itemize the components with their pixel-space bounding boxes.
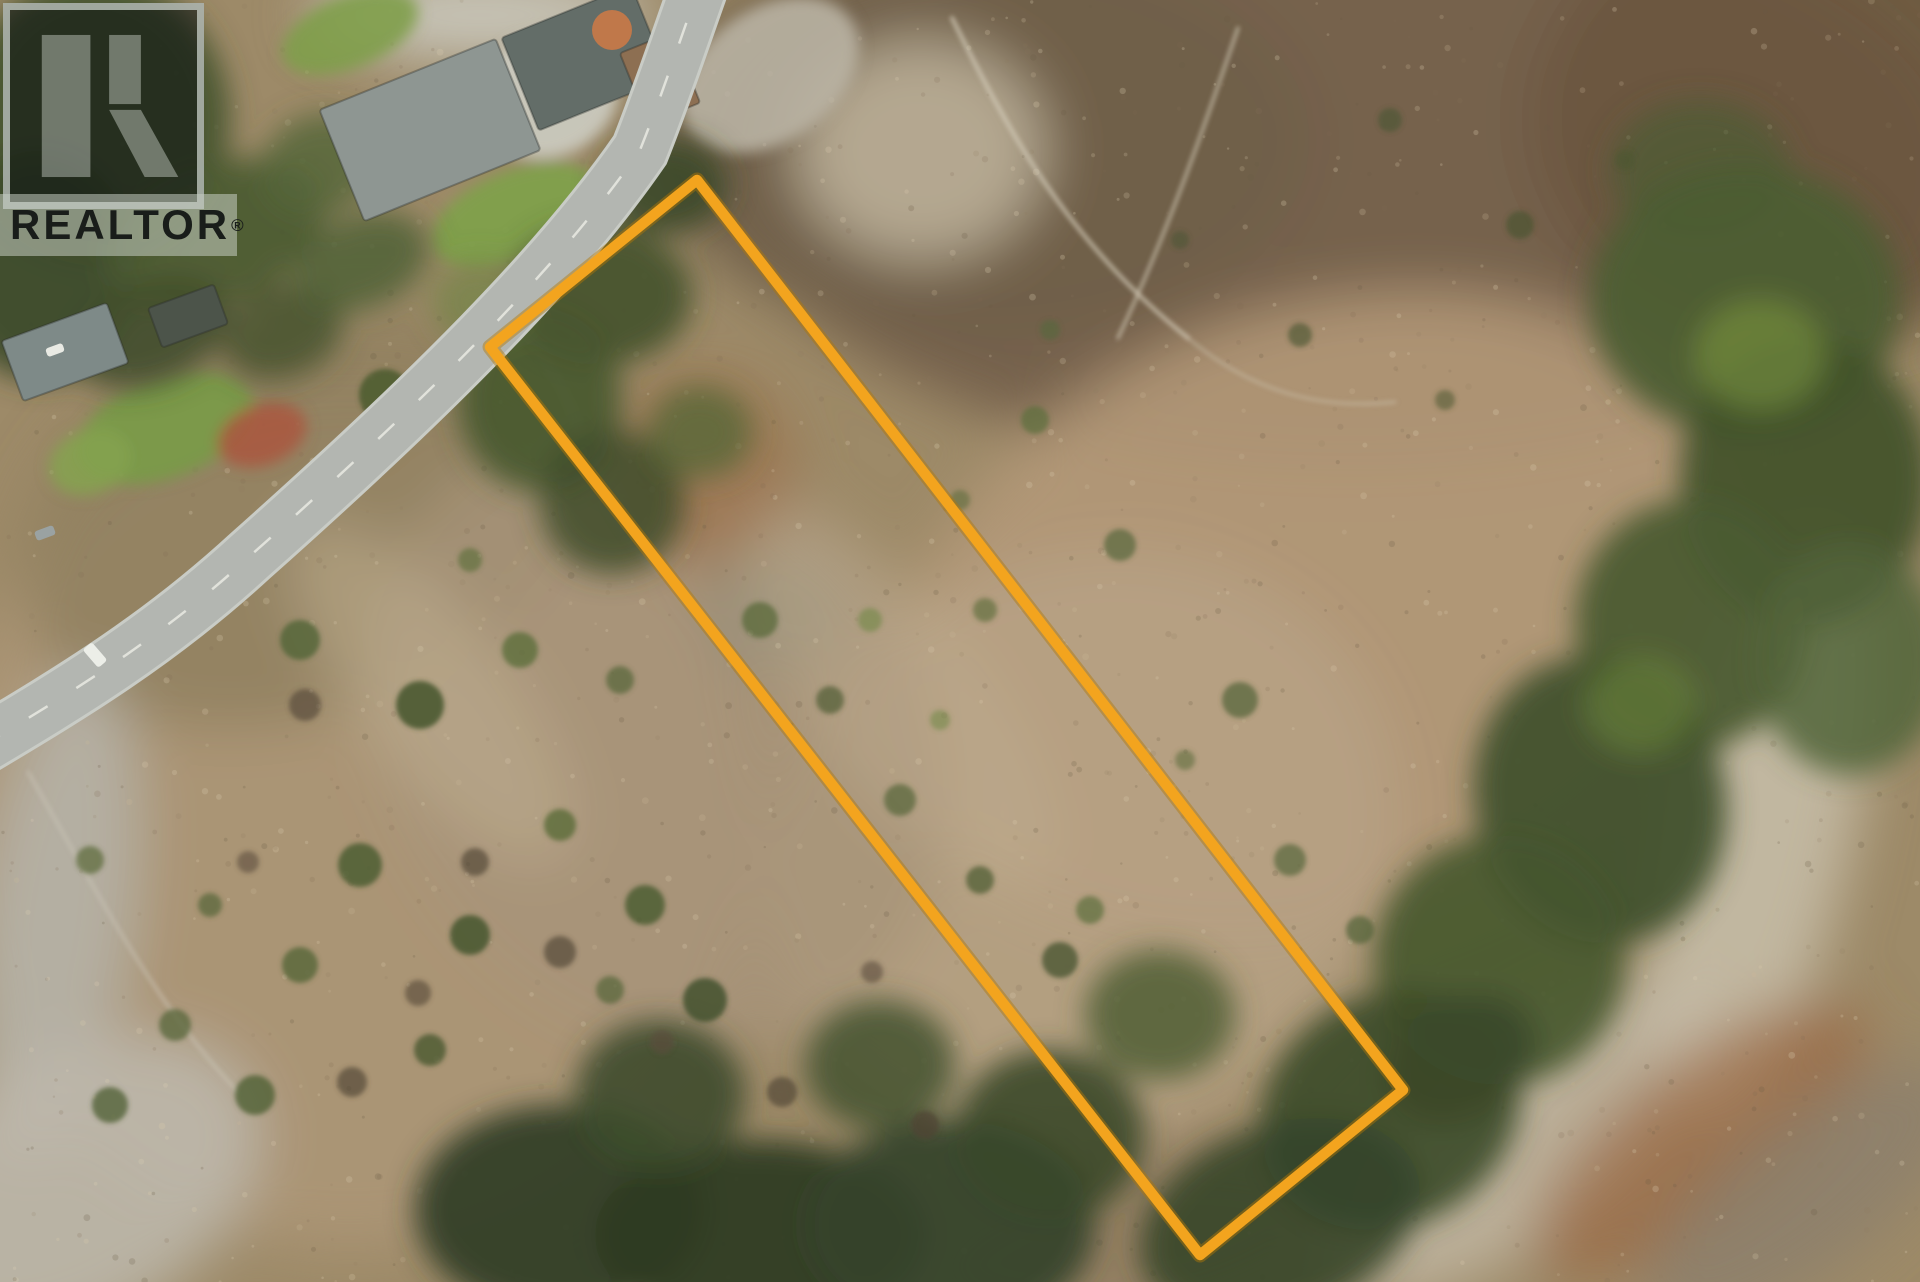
registered-trademark-symbol: ® [231,217,244,234]
aerial-photo: REALTOR® [0,0,1920,1282]
realtor-r-glyph [10,10,197,202]
realtor-logo-icon [3,3,204,209]
aerial-scene-svg [0,0,1920,1282]
realtor-logo-text: REALTOR [10,204,230,246]
realtor-logo-wordmark: REALTOR® [0,194,237,256]
round-roof-structure [592,10,632,50]
